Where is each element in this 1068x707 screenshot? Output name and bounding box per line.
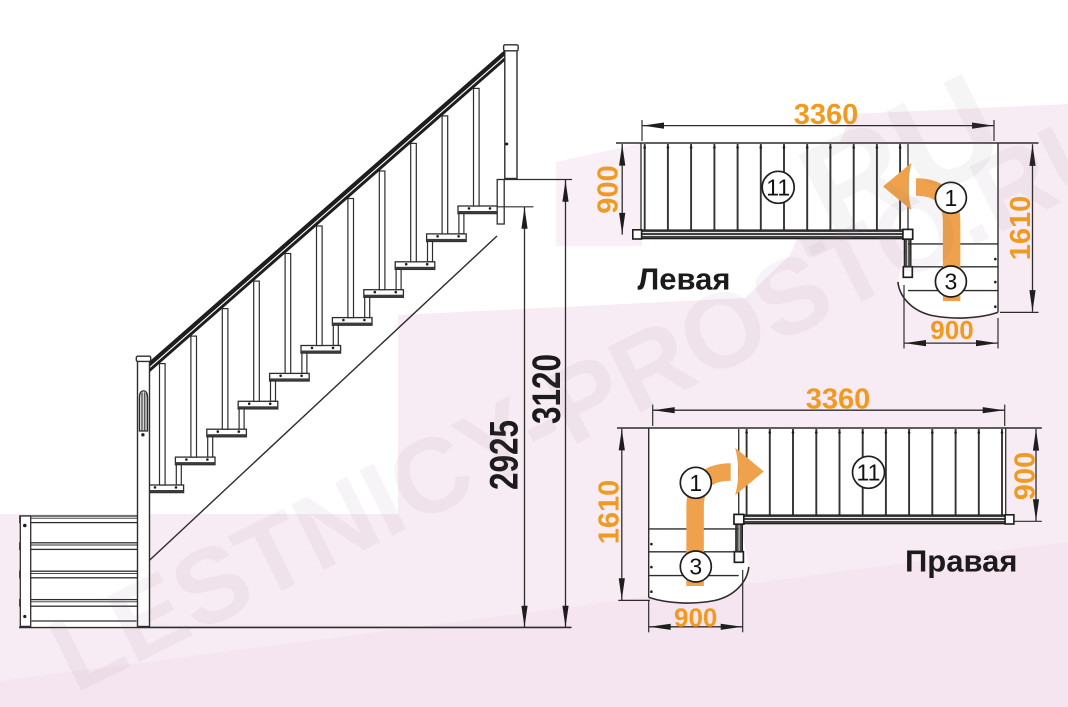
svg-text:900: 900	[1010, 452, 1042, 500]
svg-text:11: 11	[857, 459, 881, 485]
svg-text:900: 900	[593, 165, 625, 213]
svg-text:3: 3	[689, 554, 702, 580]
svg-text:1: 1	[689, 470, 702, 496]
svg-text:3360: 3360	[806, 383, 871, 415]
svg-text:900: 900	[930, 315, 973, 345]
svg-text:900: 900	[674, 603, 717, 633]
svg-text:1610: 1610	[594, 480, 626, 545]
svg-text:Правая: Правая	[905, 544, 1017, 579]
